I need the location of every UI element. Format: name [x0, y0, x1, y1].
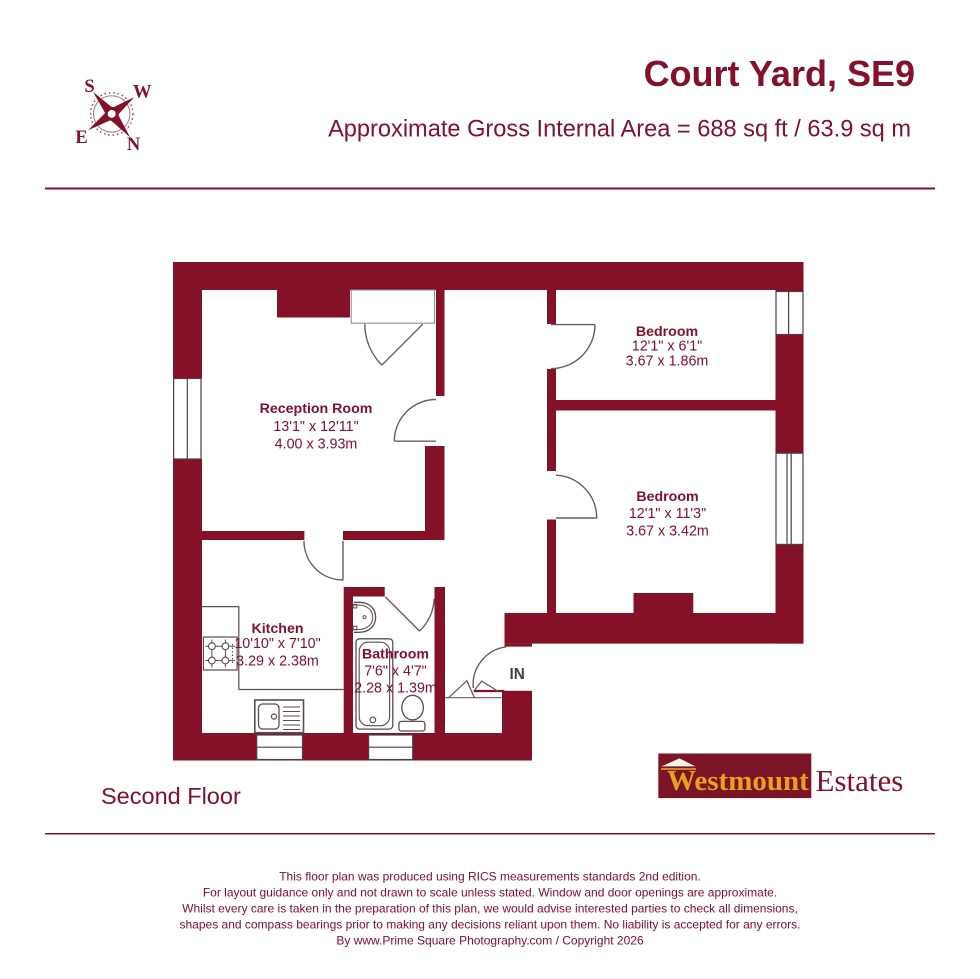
svg-text:Bedroom: Bedroom	[636, 324, 698, 340]
svg-text:13'1" x 12'11": 13'1" x 12'11"	[273, 419, 358, 435]
svg-text:For layout guidance only and n: For layout guidance only and not drawn t…	[203, 886, 777, 900]
svg-text:Approximate Gross Internal Are: Approximate Gross Internal Area = 688 sq…	[328, 117, 911, 143]
svg-text:12'1" x 6'1": 12'1" x 6'1"	[632, 339, 702, 355]
svg-text:Court Yard, SE9: Court Yard, SE9	[644, 53, 915, 94]
svg-text:Estates: Estates	[816, 763, 904, 798]
svg-text:S: S	[84, 77, 94, 97]
svg-text:E: E	[75, 128, 87, 148]
svg-text:Reception Room: Reception Room	[260, 401, 373, 417]
svg-text:By www.Prime Square Photograph: By www.Prime Square Photography.com / Co…	[336, 934, 644, 948]
svg-text:3.29 x 2.38m: 3.29 x 2.38m	[236, 654, 319, 670]
svg-text:7'6" x 4'7": 7'6" x 4'7"	[364, 664, 427, 680]
svg-text:10'10" x 7'10": 10'10" x 7'10"	[234, 636, 320, 652]
svg-text:Westmount: Westmount	[667, 765, 809, 797]
svg-text:W: W	[133, 82, 152, 102]
svg-text:3.67 x 1.86m: 3.67 x 1.86m	[626, 353, 709, 369]
svg-text:This floor plan was produced u: This floor plan was produced using RICS …	[279, 870, 701, 884]
svg-text:shapes and compass bearings pr: shapes and compass bearings prior to mak…	[180, 918, 801, 932]
svg-text:4.00 x 3.93m: 4.00 x 3.93m	[275, 436, 358, 452]
svg-text:Whilst every care is taken in: Whilst every care is taken in the prepar…	[182, 902, 798, 916]
svg-text:Bedroom: Bedroom	[636, 489, 698, 505]
svg-text:12'1" x 11'3": 12'1" x 11'3"	[629, 506, 706, 522]
svg-text:3.67 x 3.42m: 3.67 x 3.42m	[626, 524, 709, 540]
svg-text:Bathroom: Bathroom	[362, 647, 429, 663]
svg-text:IN: IN	[510, 666, 525, 683]
svg-text:N: N	[127, 135, 141, 155]
svg-text:Kitchen: Kitchen	[251, 621, 303, 637]
svg-text:2.28 x 1.39m: 2.28 x 1.39m	[354, 680, 437, 696]
svg-text:Second Floor: Second Floor	[101, 783, 241, 809]
